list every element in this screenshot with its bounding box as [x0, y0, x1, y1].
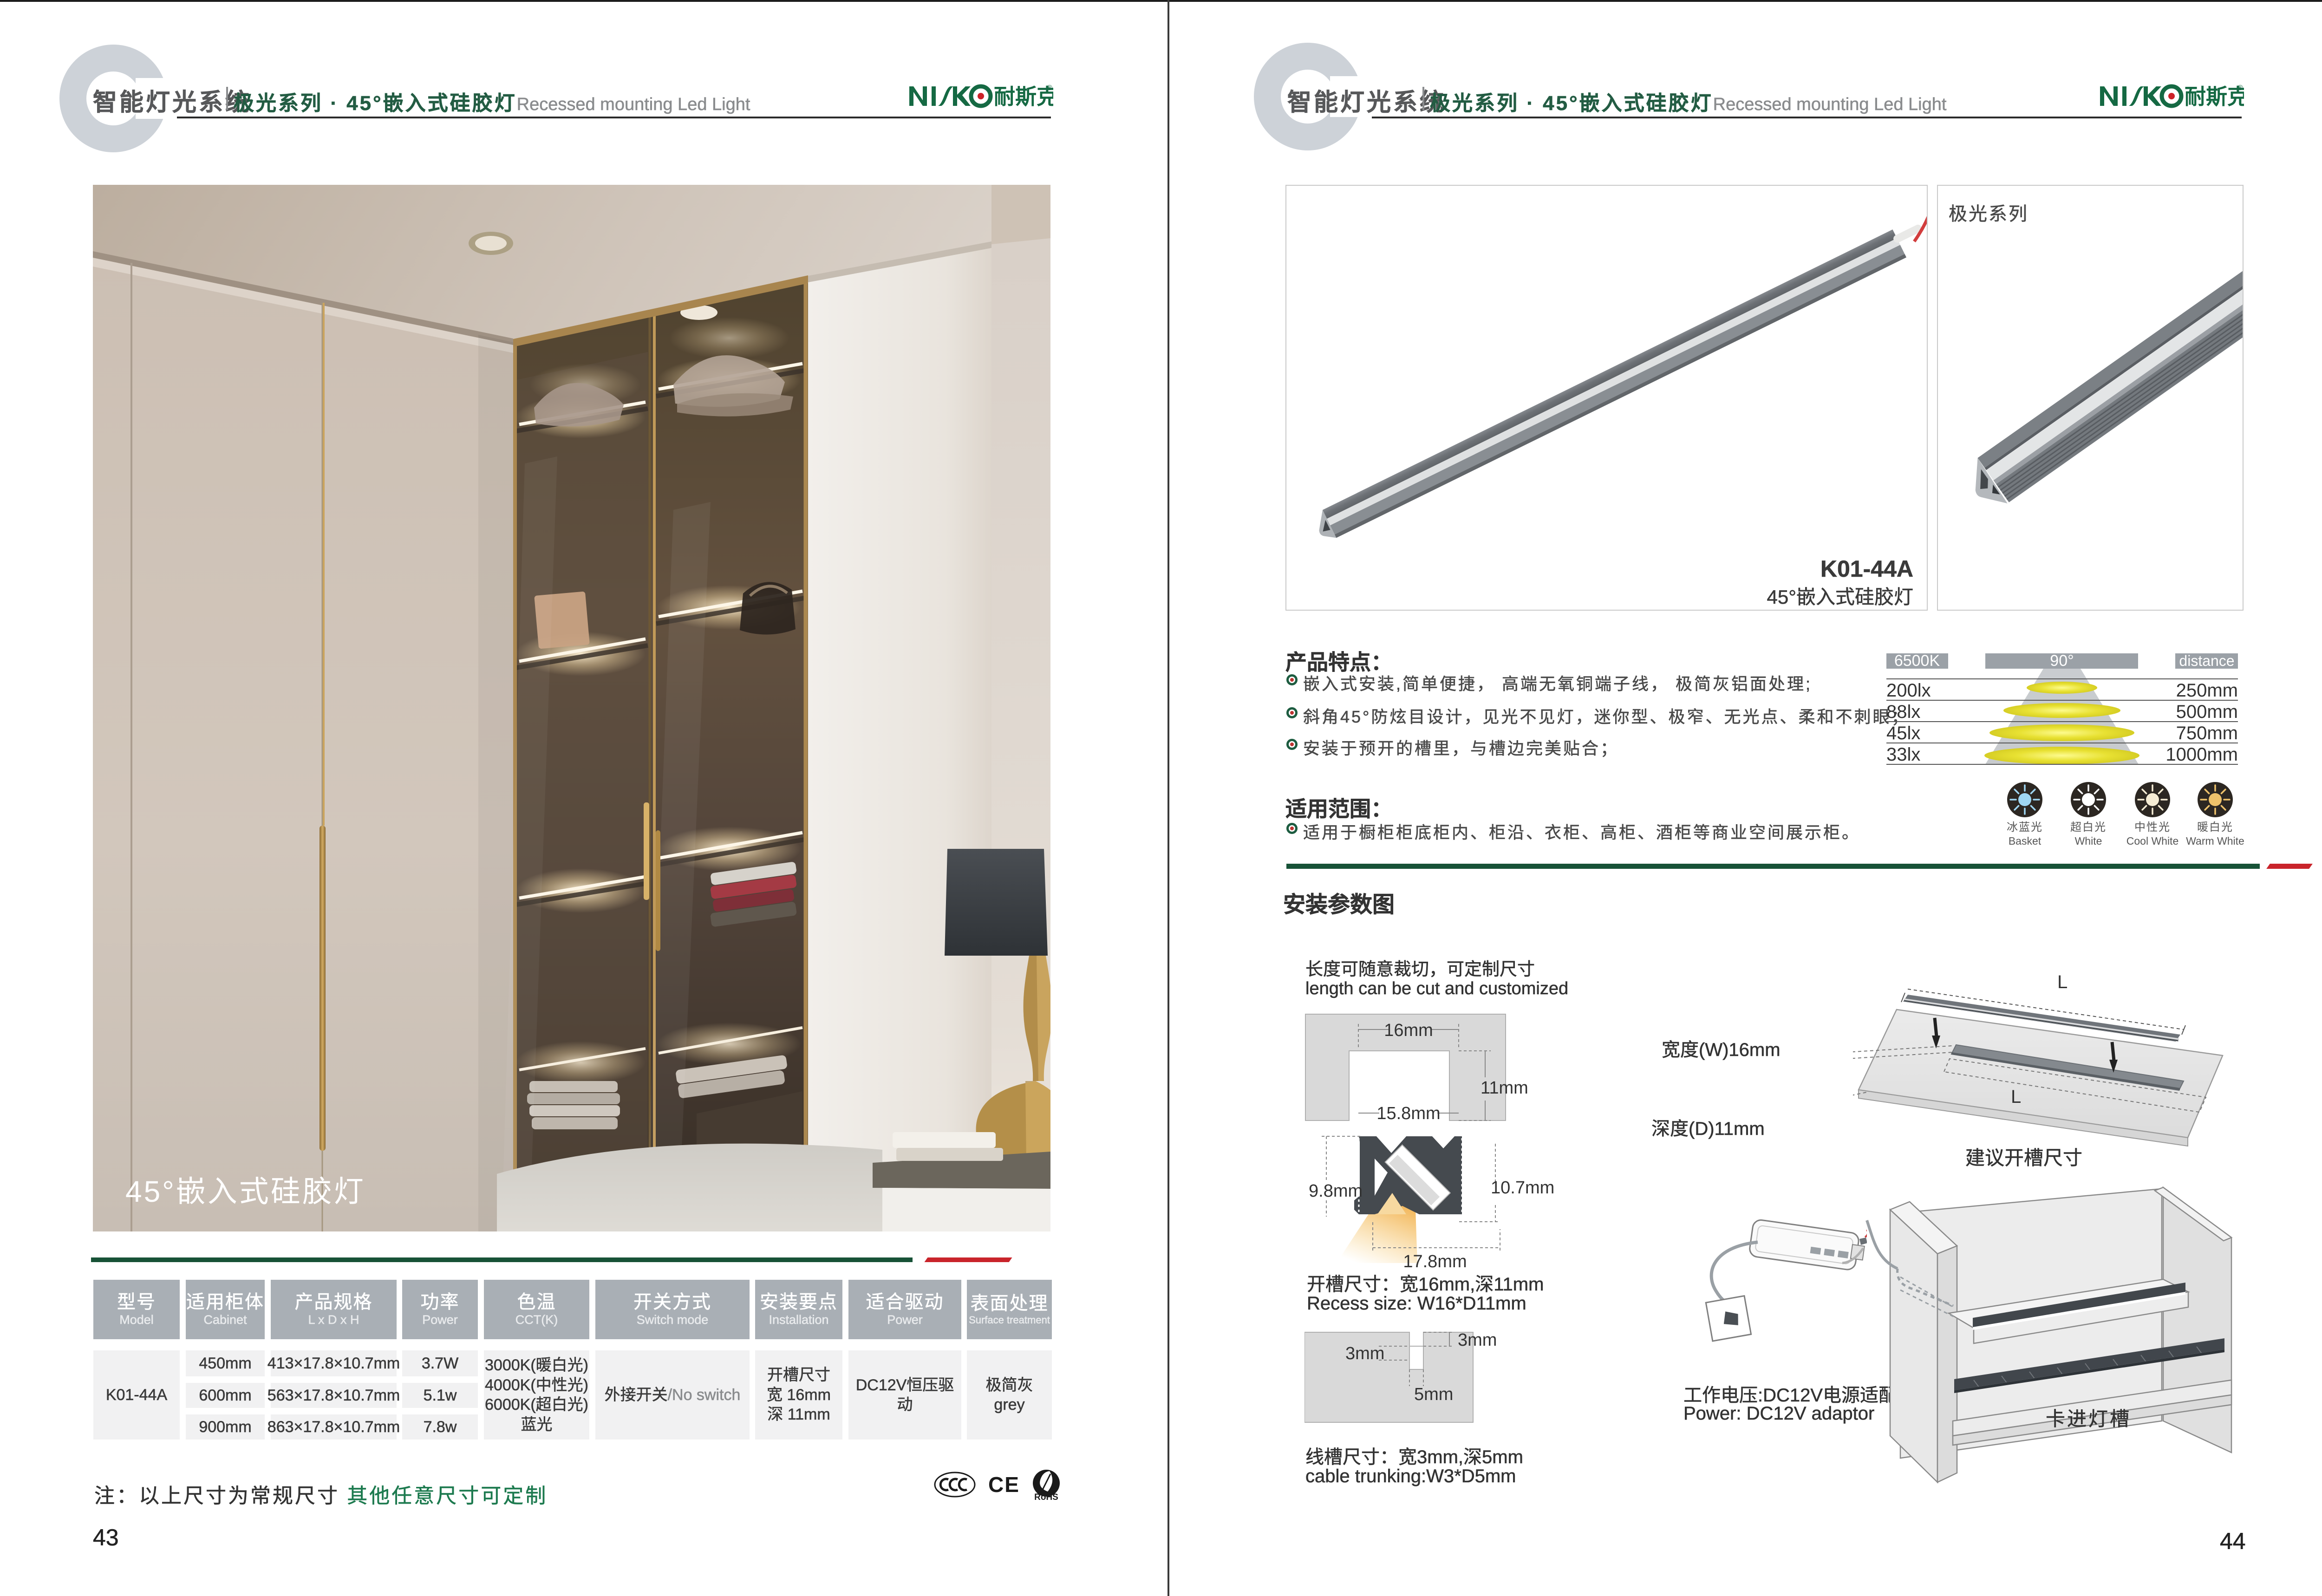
svg-text:88lx: 88lx	[1886, 702, 1920, 722]
svg-text:6500K: 6500K	[1894, 652, 1940, 670]
svg-text:暖白光: 暖白光	[2197, 821, 2233, 834]
svg-text:500mm: 500mm	[2176, 702, 2238, 722]
svg-text:90°: 90°	[2050, 652, 2074, 670]
svg-text:冰蓝光: 冰蓝光	[2007, 821, 2043, 834]
svg-text:3mm: 3mm	[1458, 1330, 1497, 1350]
svg-text:耐斯克: 耐斯克	[2185, 85, 2244, 109]
svg-text:L: L	[2011, 1087, 2021, 1107]
svg-text:Basket: Basket	[2009, 835, 2042, 847]
svg-text:9.8mm: 9.8mm	[1309, 1181, 1363, 1201]
svg-text:中性光: 中性光	[2134, 821, 2171, 834]
svg-text:16mm: 16mm	[1384, 1021, 1433, 1040]
svg-text:5mm: 5mm	[1414, 1385, 1453, 1404]
svg-text:Cool White: Cool White	[2126, 835, 2179, 847]
svg-text:®: ®	[2237, 84, 2243, 92]
svg-text:3mm: 3mm	[1345, 1344, 1384, 1363]
svg-text:L: L	[2057, 972, 2068, 992]
svg-text:CE: CE	[988, 1472, 1020, 1497]
svg-text:®: ®	[1047, 84, 1052, 92]
svg-text:1000mm: 1000mm	[2165, 744, 2238, 765]
svg-text:distance: distance	[2179, 652, 2234, 669]
svg-text:33lx: 33lx	[1886, 744, 1920, 765]
svg-text:超白光: 超白光	[2070, 821, 2107, 834]
svg-text:耐斯克: 耐斯克	[994, 85, 1053, 109]
svg-text:10.7mm: 10.7mm	[1491, 1178, 1554, 1198]
svg-text:45lx: 45lx	[1886, 723, 1920, 743]
svg-text:45°嵌入式硅胶灯: 45°嵌入式硅胶灯	[125, 1175, 365, 1208]
svg-text:250mm: 250mm	[2176, 680, 2238, 701]
svg-text:RoHS: RoHS	[1034, 1492, 1058, 1502]
svg-text:750mm: 750mm	[2176, 723, 2238, 743]
svg-text:Warm White: Warm White	[2186, 835, 2244, 847]
svg-text:200lx: 200lx	[1886, 680, 1931, 701]
svg-text:17.8mm: 17.8mm	[1403, 1252, 1467, 1270]
svg-text:White: White	[2075, 835, 2102, 847]
svg-text:11mm: 11mm	[1481, 1078, 1528, 1098]
svg-text:15.8mm: 15.8mm	[1376, 1104, 1440, 1123]
